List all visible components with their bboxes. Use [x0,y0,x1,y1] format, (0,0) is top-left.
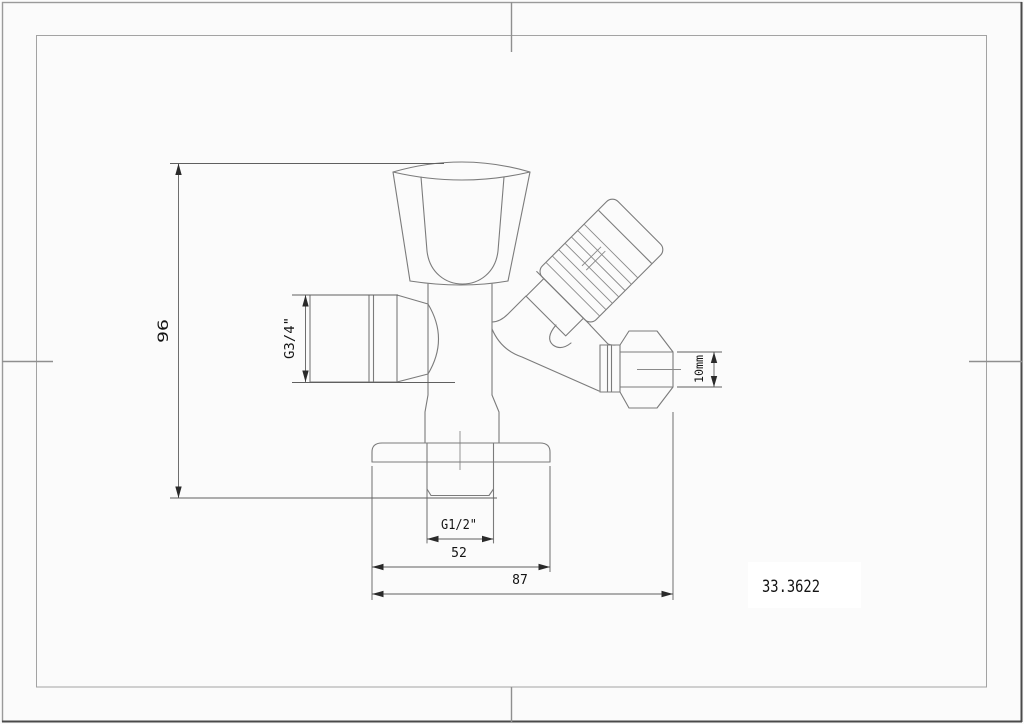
thread-end-chamfer [427,489,494,496]
sheet-frame [2,2,1022,722]
dim-g34-arrow-up [302,295,308,307]
knurled-knob [519,196,666,343]
left-port-g34 [310,295,439,382]
valve-handle [393,162,530,285]
part-number-box: 33.3622 [748,562,861,608]
dim-g34-arrow-down [302,371,308,383]
dim-96-arrow-up [175,164,181,176]
handle-inner-left-line [421,177,427,251]
dim-g12-label: G1/2" [441,518,477,533]
dim-96-label: 96 [156,319,172,343]
wall-flange [372,443,550,462]
left-port-dome-arc [428,304,439,374]
dim-g12-arrow-left [427,536,439,542]
handle-top-lens-arc [393,172,530,180]
dim-outlet: 10mm [677,352,722,387]
knob-neck-lower-fillet [550,325,571,348]
flange-outline [372,443,550,462]
dim-87-label: 87 [512,573,528,588]
outlet-passage [492,325,616,391]
dim-10mm-label: 10mm [692,355,706,383]
outer-border [3,3,1022,722]
knob-cap-outline [537,196,666,325]
part-number: 33.3622 [762,577,820,597]
knob-end-band [599,211,651,263]
dim-87-arrow-left [372,591,384,597]
handle-inner-right-line [498,177,504,251]
dim-52-arrow-right [539,564,551,570]
dim-overall-width: 87 [372,412,673,600]
dim-overall-height: 96 [156,164,497,499]
hex-nut [620,331,681,408]
engineering-sheet: 96 G3/4" 10mm G1/2" [0,0,1024,724]
dim-96-arrow-down [175,487,181,499]
dim-bottom-thread: G1/2" [427,518,494,542]
dim-52-label: 52 [451,546,467,561]
knob-accent-line [586,251,605,270]
dim-52-arrow-left [372,564,384,570]
dim-87-arrow-right [662,591,674,597]
valve-technical-drawing: 96 G3/4" 10mm G1/2" [0,0,1024,724]
knob-neck-upper-edge [492,296,526,322]
dim-10mm-arrow-up [711,352,717,363]
handle-right-side [508,172,530,281]
dimensions: 96 G3/4" 10mm G1/2" [156,164,722,601]
left-port-cap-top-slant [397,295,428,304]
knob-neck-fillets [492,296,571,348]
valve-drawing [310,162,681,543]
valve-body [425,284,499,470]
passage-lower-edge [492,329,599,391]
handle-left-side [393,172,410,281]
dim-g34-label: G3/4" [283,317,298,359]
body-flare-left [425,395,428,443]
passage-upper-edge [590,325,616,345]
left-port-cap-bottom-slant [397,374,428,382]
body-flare-right [492,395,499,443]
dim-g12-arrow-right [482,536,494,542]
outlet-stub [600,345,620,392]
handle-scoop-arc [427,251,498,284]
dim-10mm-arrow-down [711,376,717,387]
knob-accent-line [582,247,601,266]
